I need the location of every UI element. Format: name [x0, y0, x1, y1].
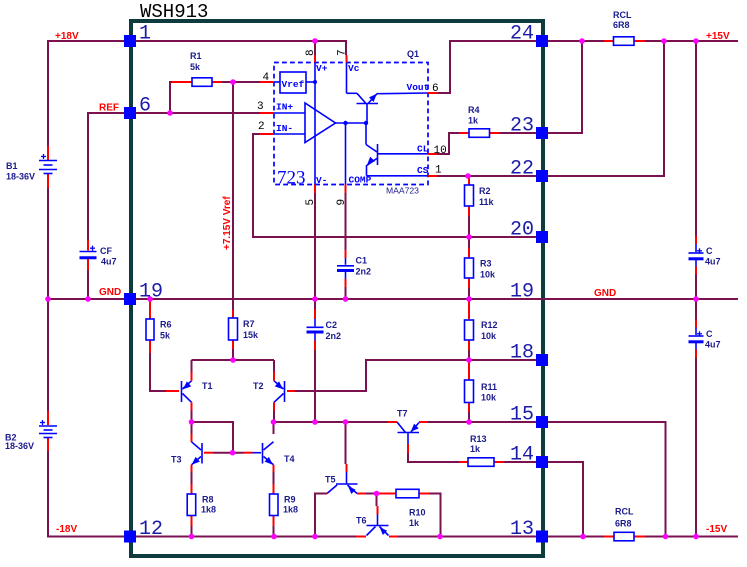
svg-text:R10: R10: [409, 508, 426, 518]
svg-text:+7.15V Vref: +7.15V Vref: [222, 196, 233, 250]
svg-text:-15V: -15V: [706, 524, 727, 535]
svg-text:1: 1: [139, 23, 151, 46]
svg-text:10k: 10k: [480, 270, 496, 280]
svg-text:12: 12: [139, 518, 163, 541]
svg-text:Vout: Vout: [407, 82, 430, 93]
svg-text:GND: GND: [594, 288, 616, 299]
svg-text:4u7: 4u7: [705, 340, 721, 350]
svg-text:1: 1: [435, 165, 442, 177]
svg-text:T6: T6: [356, 516, 367, 526]
svg-text:3: 3: [257, 101, 264, 113]
svg-text:14: 14: [510, 444, 534, 467]
svg-text:MAA723: MAA723: [386, 186, 419, 196]
svg-text:R4: R4: [468, 105, 480, 115]
svg-text:7: 7: [337, 49, 349, 56]
svg-text:1k8: 1k8: [201, 505, 216, 515]
svg-text:6R8: 6R8: [613, 20, 630, 30]
svg-text:4u7: 4u7: [101, 257, 117, 267]
svg-text:2n2: 2n2: [356, 267, 372, 277]
svg-text:4u7: 4u7: [705, 257, 721, 267]
svg-text:723: 723: [277, 168, 306, 189]
svg-text:10: 10: [434, 145, 447, 157]
svg-text:C2: C2: [326, 320, 338, 330]
svg-text:IN-: IN-: [276, 123, 293, 134]
svg-text:15k: 15k: [243, 330, 259, 340]
svg-text:GND: GND: [99, 287, 121, 298]
svg-text:19: 19: [510, 281, 534, 304]
svg-text:Vc: Vc: [348, 63, 360, 74]
svg-text:R11: R11: [481, 382, 497, 392]
svg-text:18-36V: 18-36V: [5, 441, 34, 451]
svg-text:T3: T3: [171, 455, 182, 465]
svg-text:C: C: [706, 329, 713, 339]
svg-text:15: 15: [510, 404, 534, 427]
svg-text:18: 18: [510, 342, 534, 365]
svg-text:IN+: IN+: [276, 102, 293, 113]
svg-text:RCL: RCL: [613, 10, 632, 20]
svg-text:R6: R6: [160, 320, 172, 330]
svg-text:T1: T1: [202, 381, 213, 391]
svg-text:V+: V+: [316, 63, 328, 74]
svg-text:R7: R7: [243, 319, 255, 329]
svg-text:20: 20: [510, 219, 534, 242]
svg-text:T7: T7: [397, 409, 408, 419]
svg-text:R9: R9: [284, 495, 296, 505]
svg-text:5k: 5k: [190, 62, 201, 72]
svg-text:1k: 1k: [409, 518, 420, 528]
svg-text:1k: 1k: [470, 444, 481, 454]
svg-text:R12: R12: [481, 320, 498, 330]
svg-text:18-36V: 18-36V: [6, 172, 35, 182]
svg-text:REF: REF: [99, 103, 119, 114]
svg-text:T2: T2: [253, 381, 264, 391]
svg-text:R13: R13: [470, 434, 487, 444]
svg-text:4: 4: [263, 72, 270, 84]
svg-text:19: 19: [139, 281, 163, 304]
svg-text:R1: R1: [190, 51, 202, 61]
svg-text:+18V: +18V: [55, 31, 79, 42]
svg-text:24: 24: [510, 23, 534, 46]
svg-text:V-: V-: [316, 175, 327, 186]
svg-text:1k8: 1k8: [283, 505, 298, 515]
svg-text:6R8: 6R8: [615, 519, 632, 529]
svg-text:C: C: [706, 246, 713, 256]
svg-text:R8: R8: [202, 495, 214, 505]
svg-text:Vref: Vref: [282, 79, 305, 90]
svg-text:B1: B1: [6, 161, 18, 171]
svg-text:11k: 11k: [479, 197, 495, 207]
svg-text:CF: CF: [100, 246, 112, 256]
svg-text:13: 13: [510, 518, 534, 541]
svg-text:23: 23: [510, 115, 534, 138]
svg-text:C1: C1: [356, 256, 368, 266]
svg-text:1k: 1k: [468, 116, 479, 126]
svg-text:WSH913: WSH913: [140, 1, 208, 23]
svg-text:CS: CS: [417, 165, 429, 176]
svg-text:R3: R3: [480, 259, 492, 269]
svg-text:8: 8: [305, 49, 317, 56]
svg-text:10k: 10k: [481, 393, 497, 403]
svg-text:Q1: Q1: [407, 49, 419, 59]
svg-text:+15V: +15V: [706, 31, 730, 42]
svg-text:R2: R2: [479, 186, 491, 196]
svg-text:10k: 10k: [481, 331, 497, 341]
svg-text:2n2: 2n2: [326, 331, 342, 341]
svg-text:6: 6: [432, 83, 439, 95]
svg-text:RCL: RCL: [615, 507, 634, 517]
svg-text:T4: T4: [284, 454, 295, 464]
svg-text:2: 2: [258, 121, 265, 133]
svg-text:T5: T5: [325, 475, 336, 485]
svg-text:-18V: -18V: [56, 524, 77, 535]
svg-text:6: 6: [139, 95, 151, 118]
svg-text:CL: CL: [417, 144, 429, 155]
svg-text:5k: 5k: [160, 331, 171, 341]
svg-text:22: 22: [510, 158, 534, 181]
